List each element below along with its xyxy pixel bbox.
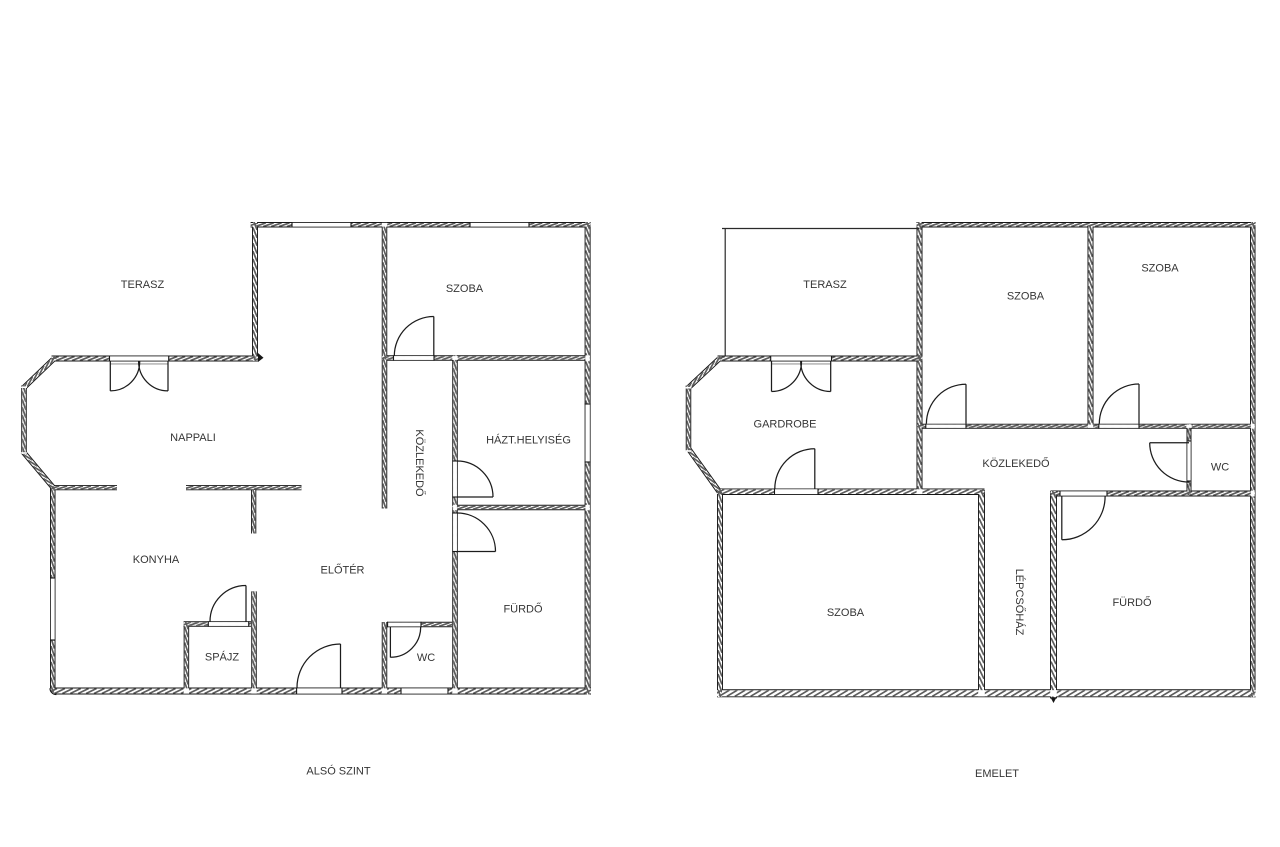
svg-text:WC: WC [1211, 461, 1229, 473]
svg-text:TERASZ: TERASZ [121, 279, 165, 291]
svg-text:SPÁJZ: SPÁJZ [205, 650, 240, 663]
svg-text:KÖZLEKEDŐ: KÖZLEKEDŐ [413, 429, 427, 497]
svg-text:TERASZ: TERASZ [803, 279, 847, 291]
svg-text:EMELET: EMELET [975, 768, 1019, 780]
svg-text:SZOBA: SZOBA [446, 283, 484, 295]
svg-text:KONYHA: KONYHA [133, 554, 180, 566]
svg-text:FÜRDŐ: FÜRDŐ [503, 601, 543, 615]
svg-text:GARDROBE: GARDROBE [754, 419, 817, 431]
svg-text:NAPPALI: NAPPALI [170, 432, 216, 444]
svg-text:FÜRDŐ: FÜRDŐ [1112, 595, 1152, 609]
svg-text:WC: WC [417, 652, 435, 664]
svg-text:SZOBA: SZOBA [1141, 262, 1179, 274]
svg-text:SZOBA: SZOBA [827, 607, 865, 619]
svg-text:HÁZT.HELYISÉG: HÁZT.HELYISÉG [486, 433, 571, 446]
svg-text:ALSÓ SZINT: ALSÓ SZINT [306, 765, 370, 778]
svg-text:ELŐTÉR: ELŐTÉR [320, 562, 364, 576]
svg-text:LÉPCSŐHÁZ: LÉPCSŐHÁZ [1013, 569, 1027, 636]
svg-text:KÖZLEKEDŐ: KÖZLEKEDŐ [982, 456, 1050, 470]
svg-text:SZOBA: SZOBA [1007, 290, 1045, 302]
